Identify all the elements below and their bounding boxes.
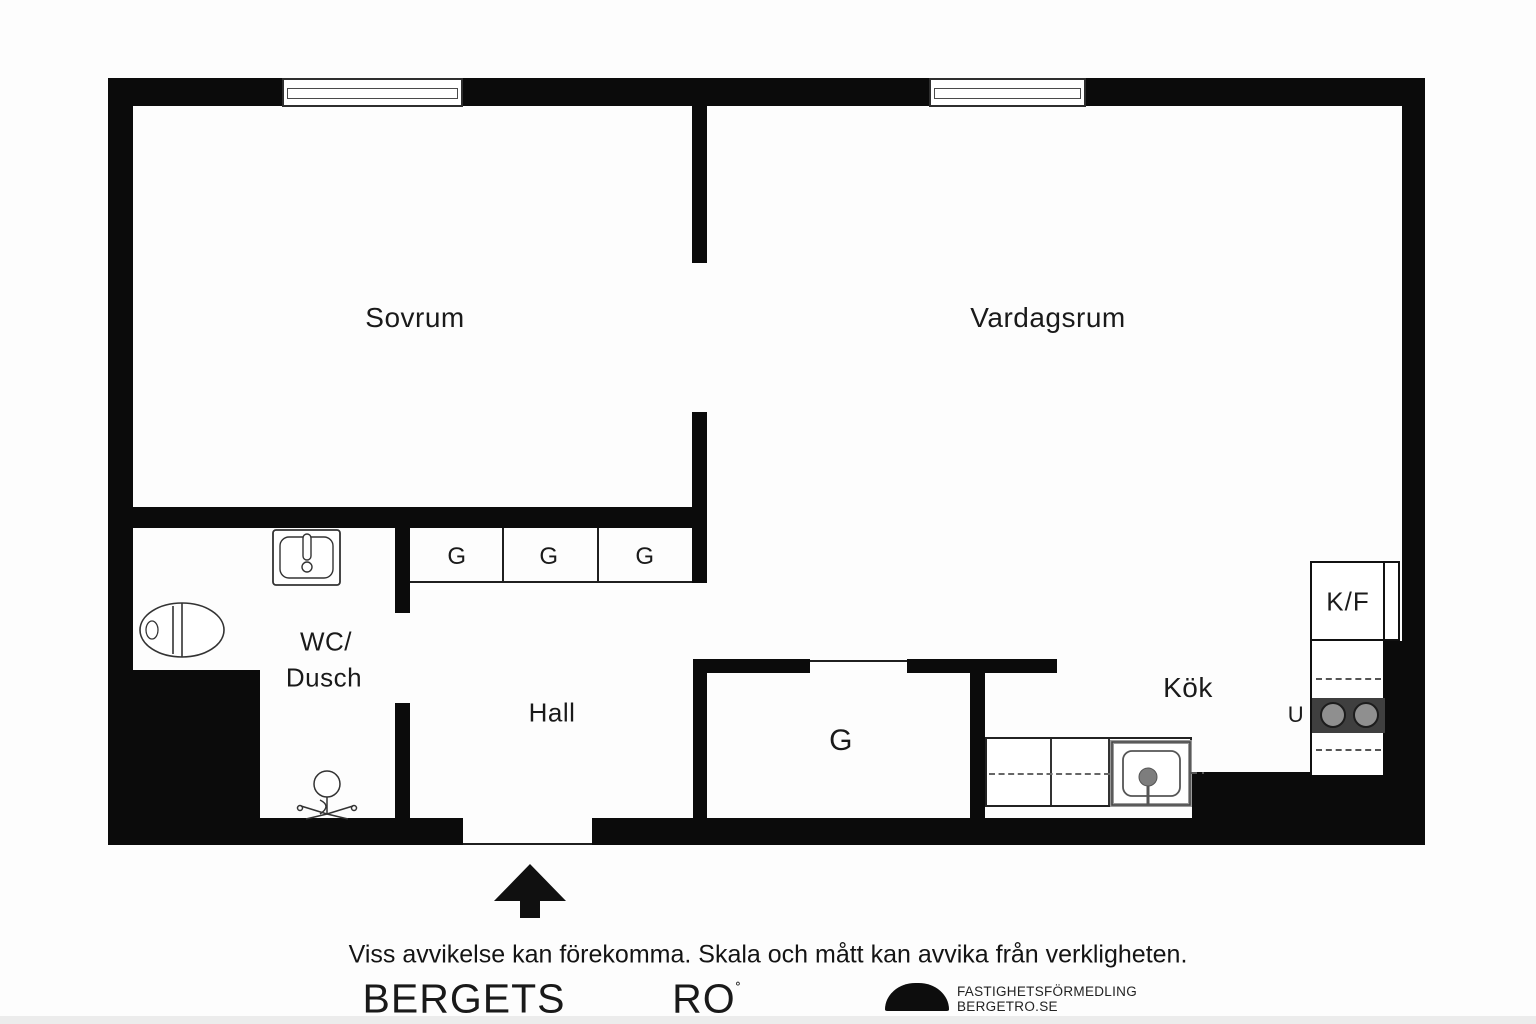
toilet-icon: [140, 603, 224, 657]
counter-dashed-line: [989, 773, 1110, 775]
counter-divider-2: [1108, 739, 1110, 805]
wall-bath-east-upper: [395, 528, 410, 613]
window-pane: [287, 88, 458, 99]
brand-ro-text: RO: [672, 976, 736, 1022]
wall-top-middle: [463, 78, 929, 106]
stove-box: [1312, 698, 1385, 733]
disclaimer-text: Viss avvikelse kan förekomma. Skala och …: [349, 941, 1188, 970]
closet-divider-1: [502, 528, 504, 583]
wall-top-left: [108, 78, 282, 106]
room-label-hall: Hall: [529, 698, 576, 729]
room-label-living: Vardagsrum: [970, 302, 1125, 334]
cabinet-dashed-top: [1316, 678, 1381, 680]
wall-closet-west: [693, 659, 707, 818]
logo-dome-icon: [885, 983, 949, 1011]
wall-shaft-block: [108, 670, 260, 845]
window-bedroom: [282, 78, 463, 107]
closet-label-large: G: [829, 724, 853, 758]
counter-divider-1: [1050, 739, 1052, 805]
room-label-kitchen: Kök: [1163, 672, 1213, 704]
bottom-edge: [0, 1016, 1536, 1024]
room-label-bath-line2: Dusch: [286, 663, 362, 694]
cabinet-dashed-bottom: [1316, 749, 1381, 751]
fridge-freezer-label: K/F: [1326, 587, 1369, 618]
wall-right: [1402, 78, 1425, 845]
fridge-freezer-box: K/F: [1310, 561, 1400, 641]
floor-plan: K/F: [0, 0, 1536, 1024]
large-closet-door-line: [810, 660, 907, 662]
wall-kitchen-east-thick: [1383, 641, 1402, 845]
kitchen-counter: [985, 737, 1192, 807]
entrance-threshold-line: [463, 843, 592, 845]
wall-bedroom-living-bottom: [692, 412, 707, 583]
wall-bath-east-lower: [395, 703, 410, 818]
burner-icon: [1353, 702, 1379, 728]
burner-icon: [1320, 702, 1346, 728]
closet-label-1: G: [447, 543, 466, 571]
closet-divider-2: [597, 528, 599, 583]
wall-bedroom-living-top: [692, 105, 707, 263]
stove-column: [1310, 641, 1383, 775]
window-living: [929, 78, 1086, 107]
closet-label-2: G: [539, 543, 558, 571]
washbasin-icon: [273, 530, 340, 585]
brand-degree-mark: ˚: [736, 982, 742, 999]
fridge-freezer-divider: [1383, 563, 1385, 639]
logo-tagline-line2: BERGETRO.SE: [957, 999, 1058, 1014]
logo-tagline-line1: FASTIGHETSFÖRMEDLING: [957, 984, 1137, 999]
closet-label-3: G: [635, 543, 654, 571]
room-label-bedroom: Sovrum: [365, 302, 464, 334]
wall-top-right: [1086, 78, 1425, 106]
shower-mixer-icon: [298, 771, 357, 819]
window-pane: [934, 88, 1081, 99]
wall-closet-top-left: [693, 659, 810, 673]
wall-bedroom-south: [133, 507, 707, 528]
room-label-bath-line1: WC/: [300, 627, 352, 658]
entrance-arrow-icon: [494, 864, 566, 918]
closet-row-front-line: [410, 581, 692, 583]
oven-label: U: [1288, 702, 1304, 728]
wall-closet-east: [970, 659, 985, 818]
